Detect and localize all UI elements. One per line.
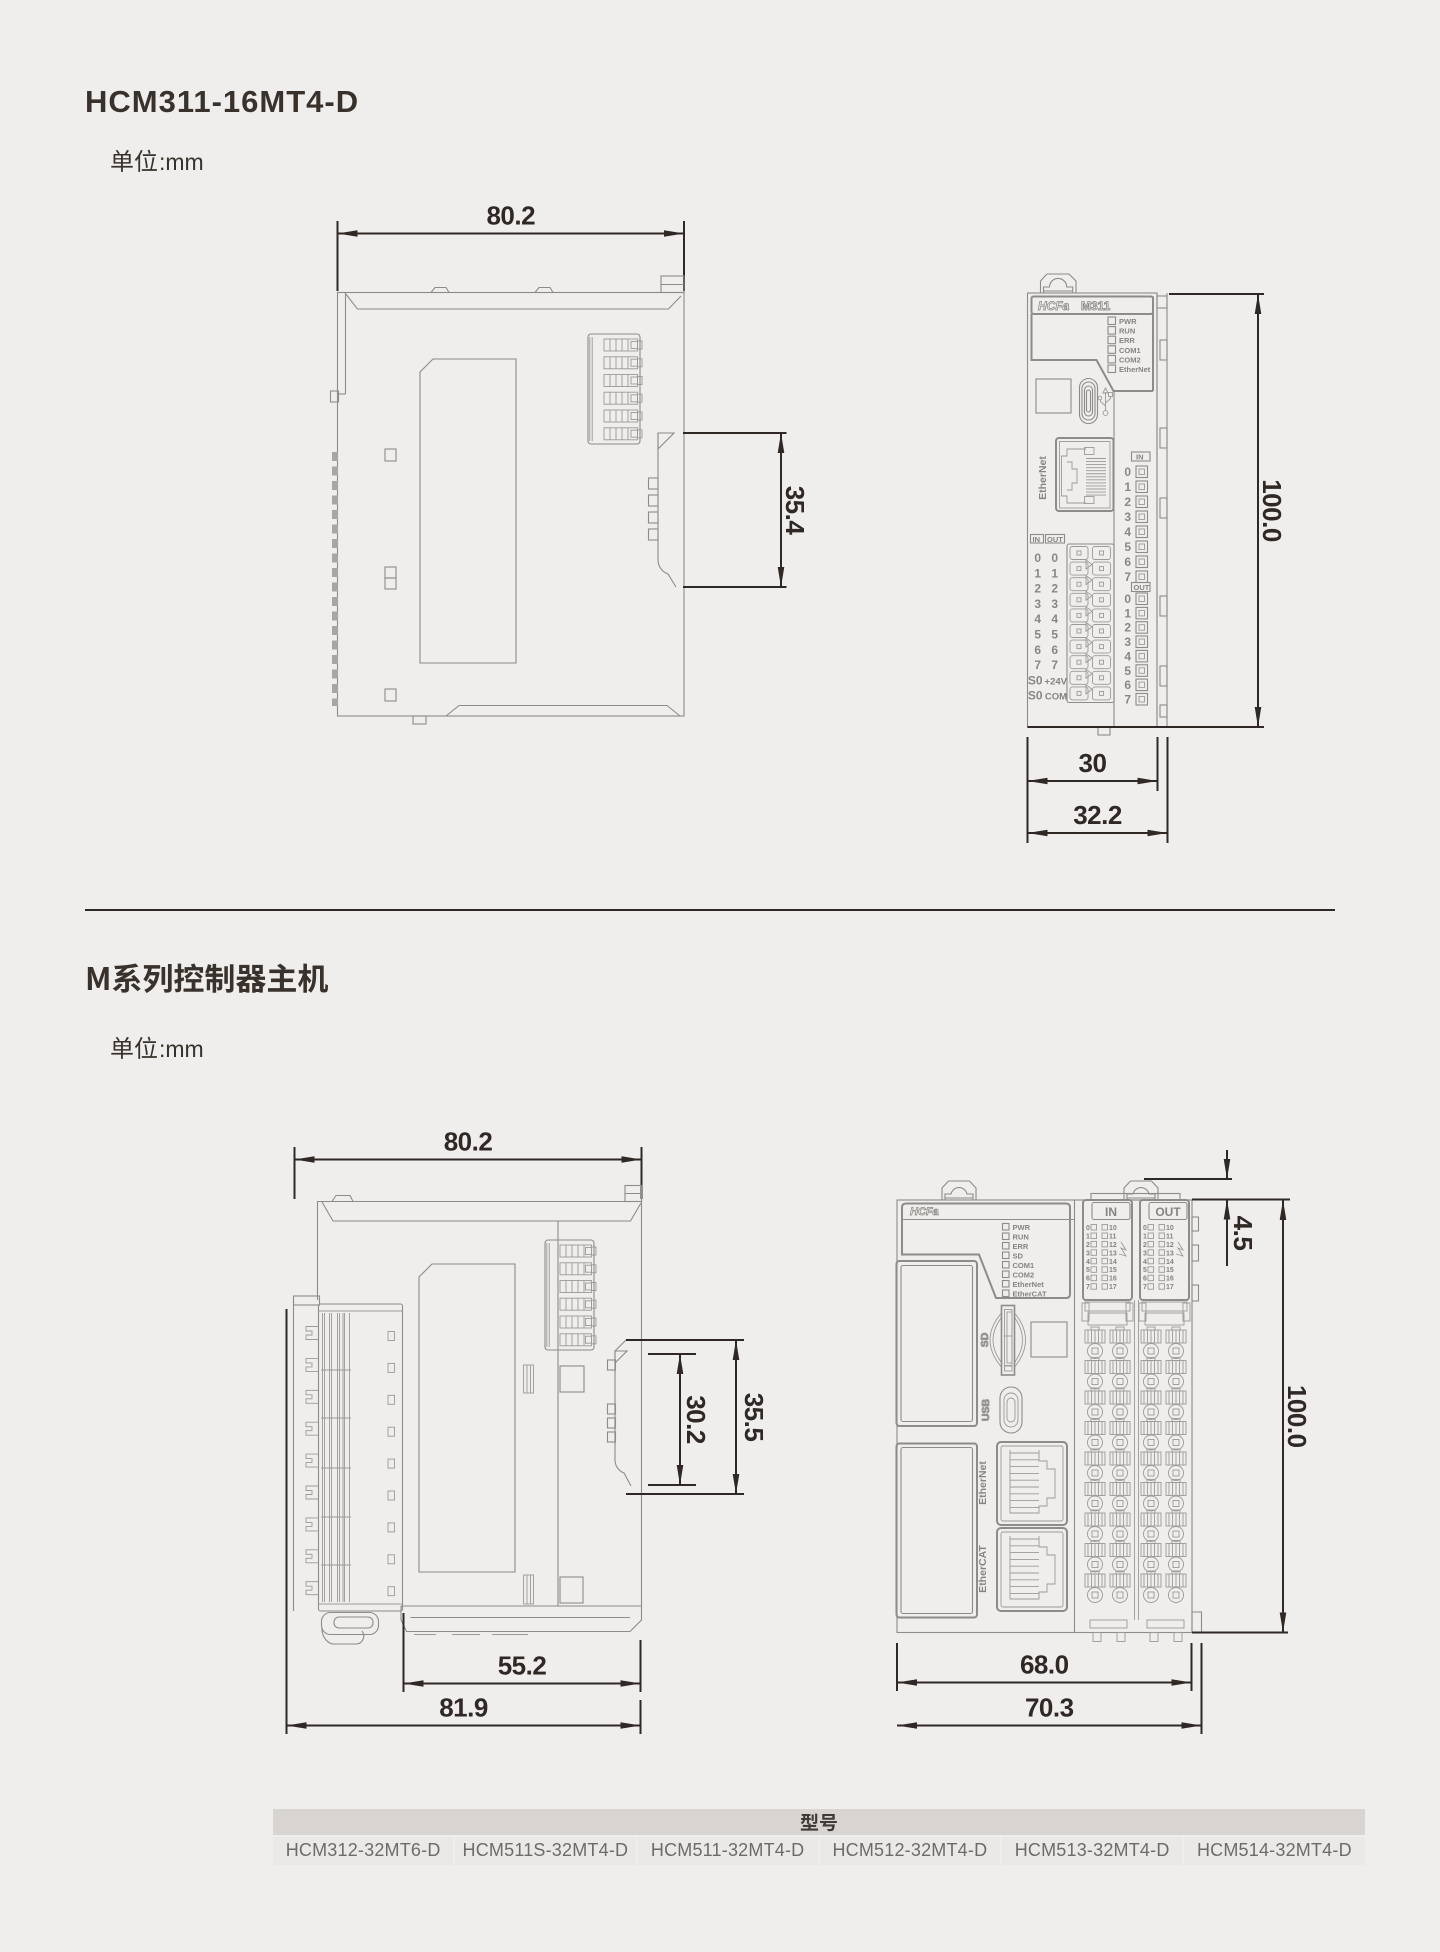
svg-text:10: 10	[1166, 1225, 1174, 1232]
svg-text:5: 5	[1086, 1267, 1090, 1274]
svg-text:15: 15	[1166, 1267, 1174, 1274]
svg-text:1: 1	[1143, 1234, 1147, 1241]
svg-text:14: 14	[1109, 1259, 1117, 1266]
svg-text:14: 14	[1166, 1259, 1174, 1266]
svg-text:OUT: OUT	[1155, 1205, 1181, 1219]
svg-text:EtherCAT: EtherCAT	[977, 1545, 989, 1593]
svg-text:13: 13	[1109, 1250, 1117, 1257]
svg-text:2: 2	[1086, 1242, 1090, 1249]
svg-text:16: 16	[1166, 1276, 1174, 1283]
svg-text:SD: SD	[979, 1332, 991, 1347]
svg-text:68.0: 68.0	[1020, 1650, 1069, 1680]
svg-text:12: 12	[1166, 1242, 1174, 1249]
svg-text:SD: SD	[1013, 1252, 1024, 1261]
svg-text:4: 4	[1086, 1259, 1090, 1266]
svg-text:13: 13	[1166, 1250, 1174, 1257]
svg-text:0: 0	[1143, 1225, 1147, 1232]
svg-text:7: 7	[1143, 1284, 1147, 1291]
svg-text:2: 2	[1143, 1242, 1147, 1249]
svg-text:EtherNet: EtherNet	[1013, 1280, 1045, 1289]
svg-text:0: 0	[1086, 1225, 1090, 1232]
svg-text:5: 5	[1143, 1267, 1147, 1274]
svg-text:EtherCAT: EtherCAT	[1013, 1290, 1047, 1299]
svg-text:3: 3	[1086, 1250, 1090, 1257]
svg-text:6: 6	[1086, 1276, 1090, 1283]
svg-text:HCFa: HCFa	[910, 1206, 939, 1218]
svg-text:4: 4	[1143, 1259, 1147, 1266]
svg-text:16: 16	[1109, 1276, 1117, 1283]
svg-text:6: 6	[1143, 1276, 1147, 1283]
svg-text:12: 12	[1109, 1242, 1117, 1249]
svg-text:11: 11	[1109, 1234, 1117, 1241]
svg-text:COM1: COM1	[1013, 1261, 1035, 1270]
svg-text:IN: IN	[1105, 1205, 1117, 1219]
svg-text:15: 15	[1109, 1267, 1117, 1274]
svg-text:COM2: COM2	[1013, 1271, 1035, 1280]
svg-text:11: 11	[1166, 1234, 1174, 1241]
svg-text:PWR: PWR	[1013, 1223, 1031, 1232]
svg-text:RUN: RUN	[1013, 1233, 1029, 1242]
svg-text:100.0: 100.0	[1282, 1385, 1312, 1448]
svg-text:4.5: 4.5	[1228, 1216, 1258, 1251]
svg-text:USB: USB	[980, 1398, 992, 1421]
svg-text:ERR: ERR	[1013, 1242, 1029, 1251]
svg-text:70.3: 70.3	[1025, 1693, 1074, 1723]
svg-text:1: 1	[1086, 1234, 1090, 1241]
svg-text:7: 7	[1086, 1284, 1090, 1291]
svg-text:3: 3	[1143, 1250, 1147, 1257]
svg-text:17: 17	[1166, 1284, 1174, 1291]
svg-text:17: 17	[1109, 1284, 1117, 1291]
svg-text:10: 10	[1109, 1225, 1117, 1232]
svg-text:EtherNet: EtherNet	[977, 1461, 989, 1505]
